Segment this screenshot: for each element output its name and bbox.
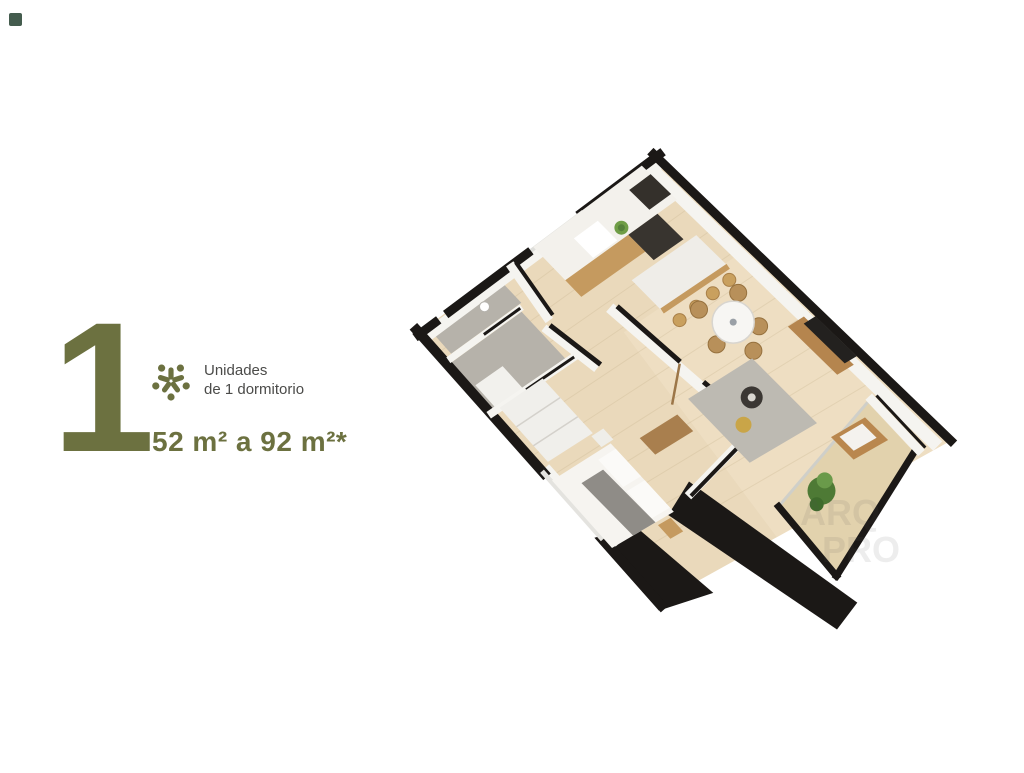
dining-chair <box>745 342 762 359</box>
dining-chair <box>691 301 708 318</box>
balcony-plant-leaf <box>817 472 833 488</box>
bar-stool <box>706 287 719 300</box>
toilet <box>480 302 490 312</box>
floor-plan-svg: ARQPRO <box>0 0 1024 768</box>
coffee-table-top-decor <box>748 393 756 401</box>
dining-chair <box>730 284 747 301</box>
bar-stool <box>723 273 736 286</box>
coffee-table-gold <box>736 417 752 433</box>
watermark-text: PRO <box>822 529 900 570</box>
brochure-page: { "page": { "background": "#ffffff", "co… <box>0 0 1024 768</box>
watermark-text: ARQ <box>800 492 880 533</box>
table-decor <box>730 319 737 326</box>
floor-plan-render: ARQPRO <box>0 0 1024 768</box>
kitchen-plant-inner <box>618 224 625 231</box>
bar-stool <box>673 314 686 327</box>
